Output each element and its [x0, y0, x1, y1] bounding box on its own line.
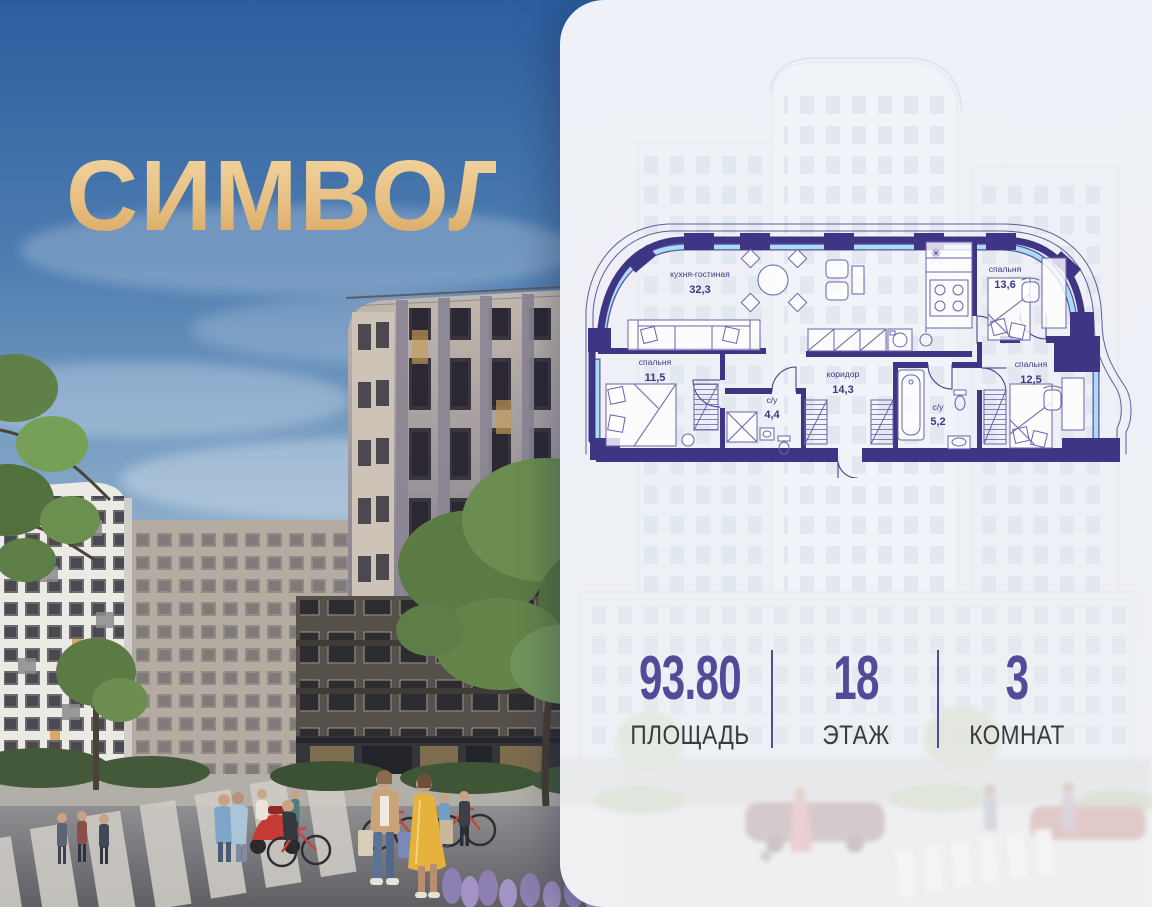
room-name: спальня: [1015, 359, 1048, 369]
room-name: коридор: [827, 369, 860, 379]
bed-11: [606, 384, 718, 446]
room-name: спальня: [989, 264, 1022, 274]
sofa: [628, 320, 760, 350]
sink-icon: [920, 328, 932, 346]
stat-area-value: 93.80: [629, 648, 751, 710]
bed-12: [984, 378, 1084, 448]
stat-rooms-value: 3: [969, 648, 1064, 710]
listing-card: СИМВОЛ: [0, 0, 1152, 907]
bathtub-icon: [898, 370, 924, 440]
room-area: 4,4: [764, 409, 780, 421]
dining-table: [741, 249, 806, 311]
corridor-closets: [805, 400, 893, 444]
room-area: 13,6: [994, 279, 1015, 291]
stat-area-label: ПЛОЩАДЬ: [614, 720, 765, 751]
room-area: 11,5: [645, 372, 666, 384]
bathroom-44: [727, 412, 790, 454]
stat-area: 93.80 ПЛОЩАДЬ: [600, 648, 780, 751]
room-area: 32,3: [689, 284, 710, 296]
room-name: спальня: [639, 357, 672, 367]
washbasin-icon: [760, 428, 774, 440]
brand-logo: СИМВОЛ: [66, 146, 496, 246]
shower-icon: [727, 412, 757, 442]
stat-floor: 18 ЭТАЖ: [781, 648, 931, 751]
stats-row: 93.80 ПЛОЩАДЬ 18 ЭТАЖ 3 КОМНАТ: [560, 648, 1152, 758]
floorplan: кухня-гостиная 32,3 спальня 13,6 спальня…: [576, 222, 1142, 478]
washbasin-icon: [948, 436, 970, 449]
room-name: кухня-гостиная: [670, 269, 730, 279]
room-area: 14,3: [832, 384, 853, 396]
room-area: 5,2: [930, 416, 945, 428]
room-name: с/у: [767, 395, 779, 405]
stat-rooms-label: КОМНАТ: [958, 720, 1076, 751]
info-panel: кухня-гостиная 32,3 спальня 13,6 спальня…: [560, 0, 1152, 907]
room-area: 12,5: [1020, 374, 1041, 386]
washer-icon: [888, 329, 912, 351]
stat-floor-label: ЭТАЖ: [793, 720, 919, 751]
stats-divider: [771, 650, 773, 748]
stats-divider: [937, 650, 939, 748]
stat-floor-value: 18: [805, 648, 907, 710]
vent-icon: [932, 249, 940, 257]
stat-rooms: 3 КОМНАТ: [947, 648, 1087, 751]
room-name: с/у: [933, 402, 945, 412]
armchairs: [826, 260, 864, 300]
toilet-icon: [954, 390, 966, 410]
